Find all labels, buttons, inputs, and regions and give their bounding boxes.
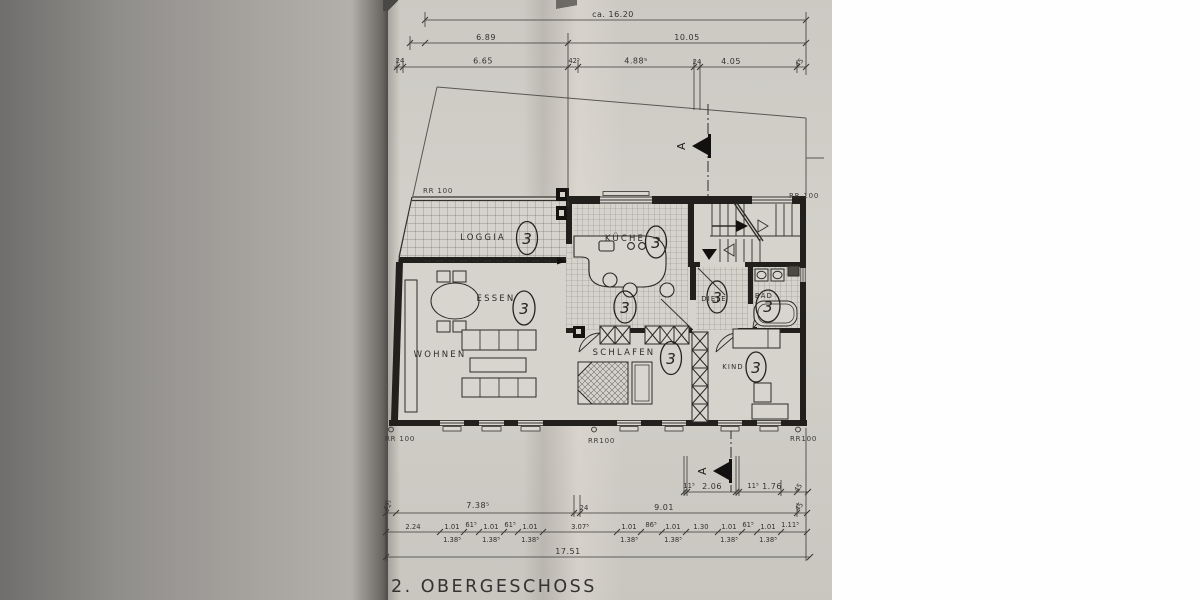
closet-strip	[600, 326, 689, 344]
svg-text:3: 3	[519, 300, 529, 318]
dimension-labels-top: ca. 16.20 6.89 10.05 24 6.65 42⁵ 4.88⁵ 2…	[396, 10, 806, 69]
dim-1751: 17.51	[555, 547, 580, 556]
dim-865: 86⁵	[645, 521, 657, 529]
dim-689: 6.89	[476, 33, 496, 42]
dim-1385e: 1.38⁵	[664, 536, 682, 544]
dim-t24a: 24	[396, 57, 405, 65]
floor-plan-drawing: A A	[0, 0, 1200, 600]
scanned-floor-plan-photo: A A	[0, 0, 1200, 600]
svg-text:3: 3	[712, 289, 722, 307]
dim-1385d: 1.38⁵	[620, 536, 638, 544]
dim-b45: 45	[794, 501, 806, 513]
west-wall-builtin	[405, 280, 417, 412]
rr-bottom-right: RR100	[790, 435, 817, 443]
dim-101f: 1.01	[721, 523, 736, 531]
dim-b24: 24	[580, 504, 589, 512]
dim-7385: 7.38⁵	[466, 501, 490, 510]
rr-bottom-left: RR 100	[385, 435, 415, 443]
dim-101b: 1.01	[483, 523, 498, 531]
dim-1385b: 1.38⁵	[482, 536, 500, 544]
dim-1385c: 1.38⁵	[521, 536, 539, 544]
dim-4885: 4.88⁵	[624, 57, 648, 66]
section-marker-bottom: A	[696, 459, 732, 483]
dim-101d: 1.01	[621, 523, 636, 531]
section-letter-bottom: A	[696, 467, 709, 475]
dim-overall: ca. 16.20	[592, 10, 634, 19]
dimensions-top	[394, 12, 809, 207]
dim-3075: 3.07⁵	[571, 523, 589, 531]
dim-1115: 1.11⁵	[781, 521, 799, 529]
room-label-kueche: KÜCHE	[605, 233, 645, 244]
room-label-essen: ESSEN	[477, 294, 516, 304]
dim-206: 2.06	[702, 482, 722, 491]
room-label-loggia: LOGGIA	[460, 233, 506, 243]
rr-top-left: RR 100	[423, 187, 453, 195]
dim-101g: 1.01	[760, 523, 775, 531]
dimension-labels-bottom: 11⁵ 2.06 11⁵ 1.76 45 42⁵ 7.38⁵ 24 9.01 4…	[382, 482, 805, 556]
dim-615a: 61⁵	[465, 521, 477, 529]
living-furniture	[462, 330, 536, 397]
dim-1005: 10.05	[674, 33, 699, 42]
svg-text:3: 3	[763, 298, 773, 316]
dim-176: 1.76	[762, 482, 782, 491]
dim-115b: 11⁵	[747, 482, 759, 490]
section-marker-top: A	[675, 134, 711, 158]
dim-425: 42⁵	[568, 57, 580, 65]
building	[389, 188, 807, 432]
room-label-kind: KIND	[722, 363, 744, 371]
svg-text:3: 3	[666, 350, 676, 368]
section-letter-top: A	[675, 142, 688, 150]
rr-bottom-mid: RR100	[588, 437, 615, 445]
dim-665: 6.65	[473, 57, 493, 66]
svg-text:3: 3	[620, 299, 630, 317]
dim-1385g: 1.38⁵	[759, 536, 777, 544]
dim-615b: 61⁵	[504, 521, 516, 529]
dim-t24b: 24	[693, 58, 702, 66]
dim-405: 4.05	[721, 57, 741, 66]
dim-615c: 61⁵	[742, 521, 754, 529]
dim-224: 2.24	[405, 523, 420, 531]
svg-text:3: 3	[751, 359, 761, 377]
dim-101e: 1.01	[665, 523, 680, 531]
dim-101a: 1.01	[444, 523, 459, 531]
svg-text:3: 3	[651, 234, 661, 252]
dim-b425: 42⁵	[382, 499, 395, 513]
room-label-schlafen: SCHLAFEN	[593, 348, 656, 358]
loggia-floor	[399, 201, 566, 257]
room-label-wohnen: WOHNEN	[414, 350, 467, 360]
dim-901: 9.01	[654, 503, 674, 512]
dim-115a: 11⁵	[683, 482, 695, 490]
drawing-title: 2. OBERGESCHOSS	[391, 577, 597, 597]
dim-1385f: 1.38⁵	[720, 536, 738, 544]
chimney-shaft	[692, 332, 708, 422]
dim-1385a: 1.38⁵	[443, 536, 461, 544]
dim-101c: 1.01	[522, 523, 537, 531]
svg-text:3: 3	[522, 230, 532, 248]
bedroom-furniture	[578, 362, 652, 404]
dim-130: 1.30	[693, 523, 708, 531]
rr-top-right: RR 100	[789, 192, 819, 200]
